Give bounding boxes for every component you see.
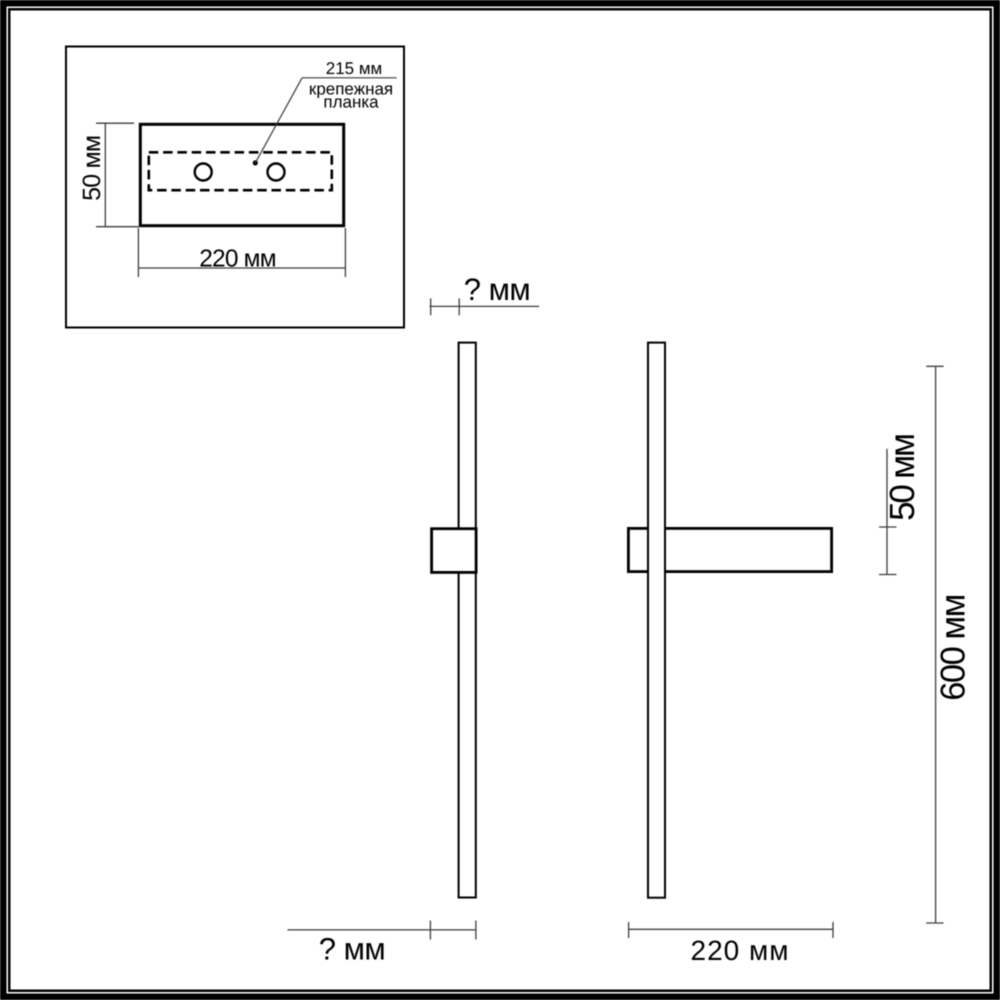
svg-text:? мм: ? мм — [319, 932, 385, 967]
svg-text:220 мм: 220 мм — [691, 935, 790, 966]
svg-text:600 мм: 600 мм — [934, 595, 972, 701]
svg-text:? мм: ? мм — [464, 272, 530, 307]
svg-text:220 мм: 220 мм — [199, 246, 276, 273]
svg-text:50 мм: 50 мм — [78, 136, 106, 201]
svg-text:215 мм: 215 мм — [326, 59, 382, 78]
svg-text:планка: планка — [323, 93, 379, 112]
svg-text:50 мм: 50 мм — [883, 435, 922, 521]
